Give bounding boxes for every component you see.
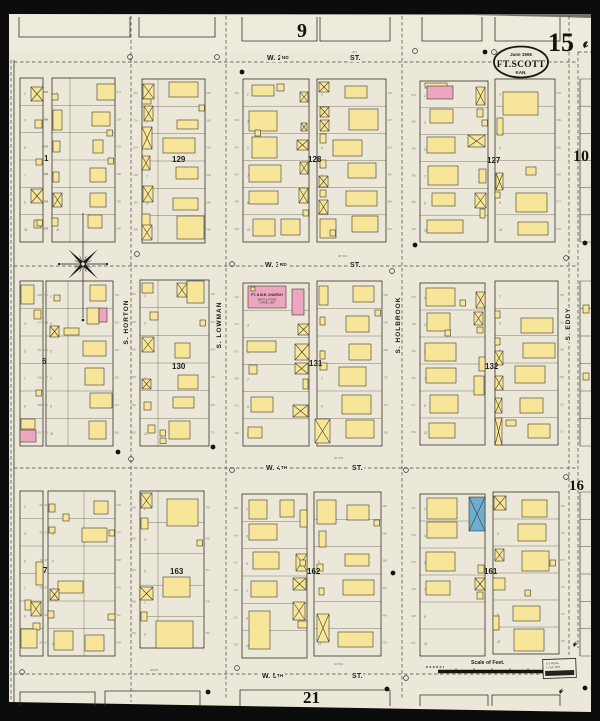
svg-text:3: 3 [247,324,249,328]
svg-text:689: 689 [132,600,137,604]
svg-text:11: 11 [318,642,322,646]
svg-text:886: 886 [235,376,240,380]
svg-text:1: 1 [424,507,426,511]
svg-text:681: 681 [557,91,562,95]
svg-text:3: 3 [50,322,52,326]
svg-text:9: 9 [424,615,426,619]
svg-text:S. HOLBROOK: S. HOLBROOK [395,297,402,354]
svg-text:899: 899 [38,293,43,297]
svg-text:884: 884 [388,200,393,204]
svg-text:360: 360 [207,118,212,122]
svg-text:455: 455 [211,403,216,407]
svg-text:9: 9 [247,405,249,409]
svg-text:3: 3 [144,538,146,542]
svg-text:449: 449 [383,613,388,617]
svg-text:1: 1 [144,294,146,298]
svg-text:3: 3 [24,322,26,326]
svg-text:701: 701 [561,585,566,589]
svg-text:419: 419 [44,559,49,562]
svg-text:42'W'5: 42'W'5 [150,668,159,672]
svg-text:853: 853 [388,145,393,149]
svg-text:130: 130 [172,362,186,371]
svg-text:11: 11 [499,228,503,232]
svg-text:594: 594 [40,503,45,507]
svg-text:42' W'4: 42' W'4 [334,456,344,460]
svg-text:363: 363 [134,200,139,204]
svg-text:162: 162 [307,567,321,576]
svg-text:432: 432 [117,503,122,507]
svg-text:6: 6 [42,357,47,366]
svg-text:890: 890 [207,200,212,204]
svg-text:711: 711 [117,613,122,617]
svg-text:837: 837 [38,431,43,435]
svg-text:ST.: ST. [350,55,361,62]
svg-text:7: 7 [246,589,248,593]
svg-text:FT. A M.E. CHURCH: FT. A M.E. CHURCH [251,293,283,297]
svg-text:128: 128 [308,155,322,164]
svg-text:584: 584 [117,641,122,645]
svg-text:879: 879 [412,560,417,564]
svg-text:626: 626 [412,587,417,591]
svg-text:615: 615 [388,227,393,231]
svg-text:420: 420 [132,348,137,352]
svg-text:5: 5 [321,147,323,151]
svg-text:11: 11 [24,228,28,232]
svg-text:9: 9 [144,632,146,636]
svg-text:480: 480 [234,506,239,510]
svg-text:819: 819 [44,145,49,149]
svg-text:5: 5 [24,560,26,564]
svg-text:454: 454 [132,631,137,635]
svg-text:7: 7 [24,377,26,381]
svg-text:785: 785 [412,322,417,326]
svg-text:9: 9 [297,20,307,42]
svg-text:1: 1 [424,94,426,98]
svg-text:658: 658 [384,293,389,297]
svg-text:46' W'3: 46' W'3 [338,254,348,258]
svg-text:873: 873 [412,93,417,97]
svg-text:510: 510 [44,294,49,297]
svg-text:399: 399 [557,118,562,122]
svg-text:9: 9 [424,201,426,205]
svg-text:872: 872 [561,558,566,562]
svg-text:744: 744 [44,199,49,203]
svg-text:576: 576 [412,295,417,299]
svg-text:374: 374 [211,320,216,324]
svg-text:740: 740 [206,505,211,509]
svg-text:3: 3 [424,534,426,538]
svg-text:708: 708 [561,639,566,643]
svg-text:440: 440 [132,505,137,509]
svg-text:1: 1 [247,92,249,96]
svg-text:523: 523 [44,642,49,645]
svg-text:3: 3 [144,321,146,325]
svg-text:1: 1 [499,294,501,298]
svg-text:ST.: ST. [352,465,363,472]
svg-text:405: 405 [412,146,417,150]
svg-text:131: 131 [309,359,323,368]
svg-text:7: 7 [247,378,249,382]
svg-text:800: 800 [132,431,137,435]
svg-text:5: 5 [50,350,52,354]
svg-text:729: 729 [388,91,393,95]
svg-text:585: 585 [206,537,211,541]
svg-text:5: 5 [499,147,501,151]
svg-text:772: 772 [560,430,565,434]
svg-text:3: 3 [24,532,26,536]
svg-text:1: 1 [321,92,323,96]
svg-text:896: 896 [44,117,49,121]
svg-text:7: 7 [321,377,323,381]
svg-text:879: 879 [134,146,139,150]
svg-text:767: 767 [384,376,389,380]
svg-text:347: 347 [235,145,240,149]
svg-text:621: 621 [44,404,49,407]
svg-text:896: 896 [207,173,212,177]
svg-text:11: 11 [50,432,54,436]
svg-text:9: 9 [24,201,26,205]
svg-text:384: 384 [206,631,211,635]
svg-text:426: 426 [207,146,212,150]
svg-text:436: 436 [235,200,240,204]
svg-text:617: 617 [412,403,417,407]
svg-text:127: 127 [487,156,501,165]
svg-text:11: 11 [424,642,428,646]
svg-text:454: 454 [234,533,239,537]
svg-text:5: 5 [247,147,249,151]
svg-text:9: 9 [50,405,52,409]
svg-text:650: 650 [132,403,137,407]
svg-text:S. HORTON: S. HORTON [123,300,130,345]
svg-text:361: 361 [557,227,562,231]
svg-text:536: 536 [206,600,211,604]
svg-text:370: 370 [384,403,389,407]
svg-text:759: 759 [211,292,216,296]
svg-text:591: 591 [560,320,565,324]
svg-text:648: 648 [235,431,240,435]
svg-text:392: 392 [134,91,139,95]
svg-text:5: 5 [52,560,54,564]
svg-text:7: 7 [424,175,426,179]
svg-text:729: 729 [383,641,388,645]
svg-text:9: 9 [246,617,248,621]
svg-text:728: 728 [132,375,137,379]
svg-text:5: 5 [246,562,248,566]
svg-text:707: 707 [561,612,566,616]
svg-text:9: 9 [24,615,26,619]
svg-text:734: 734 [134,118,139,122]
svg-text:847: 847 [412,506,417,510]
svg-text:695: 695 [560,348,565,352]
svg-text:21: 21 [303,688,320,707]
svg-text:725: 725 [132,568,137,572]
svg-text:371: 371 [44,227,49,231]
svg-text:9: 9 [247,201,249,205]
svg-text:5: 5 [24,350,26,354]
svg-text:16: 16 [569,478,585,494]
svg-text:15: 15 [548,28,574,57]
svg-text:607: 607 [115,403,120,407]
svg-text:7: 7 [43,566,48,575]
svg-text:1: 1 [499,92,501,96]
svg-text:395: 395 [384,431,389,435]
svg-text:5: 5 [24,146,26,150]
svg-text:CHAPEL 1887: CHAPEL 1887 [259,302,275,305]
svg-text:805: 805 [44,587,49,590]
svg-text:W 2: W 2 [352,50,357,54]
svg-text:884: 884 [412,200,417,204]
svg-text:1: 1 [246,507,248,511]
svg-text:549: 549 [38,376,43,380]
svg-text:706: 706 [207,228,212,232]
svg-text:569: 569 [383,531,388,535]
svg-text:860: 860 [557,145,562,149]
svg-text:355: 355 [561,504,566,508]
svg-text:700: 700 [40,558,45,562]
svg-text:1: 1 [50,295,52,299]
svg-text:9: 9 [499,201,501,205]
svg-text:9: 9 [24,405,26,409]
svg-text:7: 7 [146,174,148,178]
svg-text:606: 606 [115,321,120,325]
svg-text:364: 364 [557,172,562,176]
svg-text:764: 764 [115,293,120,297]
svg-text:759: 759 [40,613,45,617]
svg-text:11: 11 [56,228,60,232]
svg-text:447: 447 [388,118,393,122]
svg-text:KAN.: KAN. [516,70,527,75]
svg-text:312: 312 [234,615,239,619]
svg-text:870: 870 [235,172,240,176]
svg-text:S. EDDY: S. EDDY [565,307,572,340]
svg-text:S. LOWMAN: S. LOWMAN [216,302,223,349]
svg-text:1: 1 [24,505,26,509]
svg-text:824: 824 [211,348,216,352]
svg-text:796: 796 [234,643,239,647]
svg-text:663: 663 [44,504,49,507]
svg-text:871: 871 [235,349,240,353]
svg-text:338: 338 [44,172,49,176]
svg-text:11: 11 [247,228,251,232]
svg-text:360: 360 [44,614,49,617]
svg-text:3: 3 [246,535,248,539]
svg-text:428: 428 [412,614,417,618]
svg-text:9: 9 [424,404,426,408]
svg-text:670: 670 [38,321,43,325]
svg-text:3: 3 [247,120,249,124]
svg-text:FT.SCOTT: FT.SCOTT [497,60,546,70]
svg-text:674: 674 [117,90,122,94]
svg-text:5: 5 [318,560,320,564]
svg-text:651: 651 [132,292,137,296]
svg-text:3: 3 [424,121,426,125]
svg-text:808: 808 [384,321,389,325]
svg-text:864: 864 [207,91,212,95]
svg-text:ST.: ST. [350,262,361,269]
svg-text:362: 362 [412,376,417,380]
svg-text:9: 9 [321,405,323,409]
svg-text:621: 621 [235,404,240,408]
svg-text:667: 667 [206,568,211,572]
svg-text:1: 1 [24,91,26,95]
svg-text:468: 468 [211,375,216,379]
svg-text:1 inch 50ft: 1 inch 50ft [546,665,560,669]
svg-text:383: 383 [115,376,120,380]
svg-text:827: 827 [412,641,417,645]
svg-text:1: 1 [44,154,49,163]
svg-text:537: 537 [234,561,239,565]
svg-text:891: 891 [412,430,417,434]
svg-text:538: 538 [234,588,239,592]
svg-text:767: 767 [561,531,566,535]
svg-text:7: 7 [247,174,249,178]
svg-text:10: 10 [573,148,589,165]
svg-text:594: 594 [132,320,137,324]
svg-text:5: 5 [144,570,146,574]
svg-text:596: 596 [235,227,240,231]
svg-text:756: 756 [560,293,565,297]
svg-text:808: 808 [44,322,49,325]
svg-text:396: 396 [44,90,49,94]
svg-text:5: 5 [424,148,426,152]
svg-text:553: 553 [40,531,45,535]
svg-text:7: 7 [24,587,26,591]
svg-text:526: 526 [235,118,240,122]
svg-text:11: 11 [144,432,148,436]
svg-text:388: 388 [117,172,122,176]
svg-text:806: 806 [115,431,120,435]
svg-text:737: 737 [44,377,49,380]
svg-text:161: 161 [484,567,498,576]
svg-text:340: 340 [235,295,240,299]
svg-text:528: 528 [134,173,139,177]
svg-text:472: 472 [44,532,49,535]
svg-text:486: 486 [383,504,388,508]
svg-text:379: 379 [235,322,240,326]
svg-text:June 1906: June 1906 [510,52,532,57]
svg-text:ST.: ST. [352,673,363,680]
svg-text:655: 655 [560,375,565,379]
svg-text:707: 707 [117,531,122,535]
svg-text:350: 350 [235,91,240,95]
svg-text:366: 366 [412,349,417,353]
svg-text:129: 129 [172,155,186,164]
svg-text:519: 519 [117,145,122,149]
svg-text:3: 3 [24,119,26,123]
svg-text:588: 588 [383,559,388,563]
svg-text:Scale of Feet.: Scale of Feet. [471,660,505,666]
svg-text:554: 554 [38,348,43,352]
svg-text:11: 11 [424,431,428,435]
svg-text:7: 7 [24,173,26,177]
svg-text:899: 899 [134,228,139,232]
svg-text:323: 323 [560,402,565,406]
svg-text:3: 3 [499,322,501,326]
svg-text:731: 731 [211,431,216,435]
svg-text:808: 808 [117,558,122,562]
svg-text:492: 492 [412,227,417,231]
svg-text:7: 7 [50,377,52,381]
svg-text:728: 728 [117,199,122,203]
svg-text:132: 132 [485,362,499,371]
svg-text:862: 862 [40,641,45,645]
svg-text:485: 485 [412,120,417,124]
svg-text:382: 382 [40,586,45,590]
svg-text:678: 678 [412,533,417,537]
svg-text:163: 163 [170,567,184,576]
svg-text:895: 895 [412,173,417,177]
svg-text:3: 3 [497,532,499,536]
svg-text:888: 888 [38,403,43,407]
svg-text:304: 304 [383,586,388,590]
svg-text:484: 484 [115,348,120,352]
svg-text:7: 7 [144,601,146,605]
svg-text:11: 11 [497,640,501,644]
svg-text:877: 877 [557,200,562,204]
svg-text:863: 863 [132,537,137,541]
svg-text:42' W'4: 42' W'4 [334,662,344,666]
svg-text:546: 546 [117,227,122,231]
svg-text:9: 9 [146,202,148,206]
svg-text:3: 3 [424,323,426,327]
svg-text:844: 844 [44,349,49,352]
svg-text:359: 359 [117,117,122,121]
svg-text:776: 776 [44,432,49,435]
svg-text:470: 470 [117,586,122,590]
svg-text:893: 893 [384,348,389,352]
svg-text:420: 420 [388,172,393,176]
